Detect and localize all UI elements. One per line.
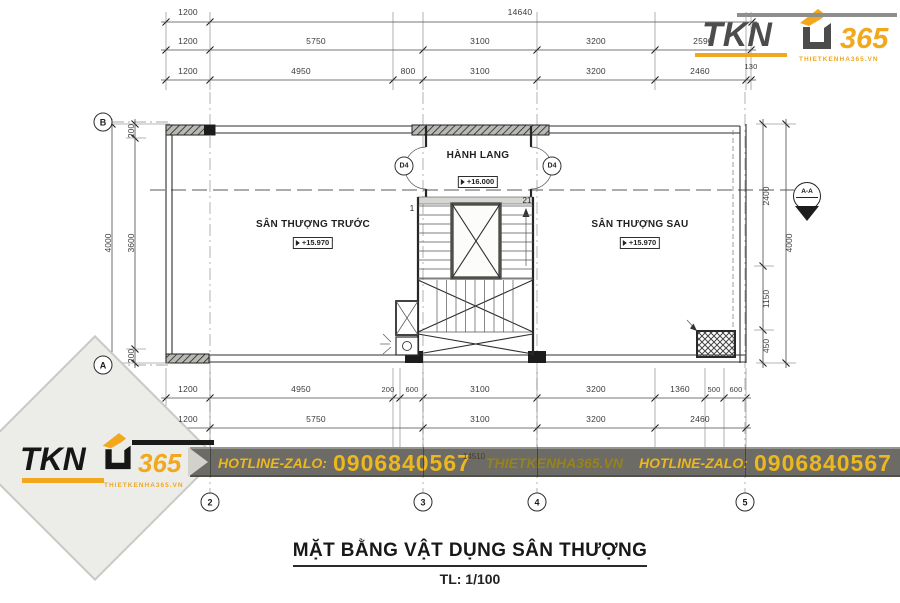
dim-label: 1200 <box>178 384 198 394</box>
hotline-phone-2: 0906840567 <box>754 450 892 477</box>
logo-bar-top <box>737 13 897 17</box>
floor-plan-page: 1200 14640 1200 5750 3100 3200 2590 1200… <box>0 0 900 603</box>
drawing-scale: TL: 1/100 <box>290 571 650 587</box>
door-tag-d4-left: D4 <box>395 157 414 176</box>
dim-label: 3200 <box>586 66 606 76</box>
grid-bubble-b: B <box>94 113 113 132</box>
watermark-logo-text: TKN <box>20 441 86 478</box>
title-block: MẶT BẰNG VẬT DỤNG SÂN THƯỢNG TL: 1/100 <box>290 540 650 587</box>
banner-chevron-icon <box>188 447 208 477</box>
dim-label: 3200 <box>586 384 606 394</box>
dim-label: 200 <box>126 124 136 138</box>
drawing-title: MẶT BẰNG VẬT DỤNG SÂN THƯỢNG <box>293 540 648 567</box>
watermark-bar-top <box>132 440 214 445</box>
dim-label-total: 14510 <box>463 452 485 461</box>
banner-website: THIETKENHA365.VN <box>486 455 623 471</box>
grid-bubble-3: 3 <box>414 493 433 512</box>
room-label-front-terrace: SÂN THƯỢNG TRƯỚC <box>256 219 370 230</box>
dim-label: 4000 <box>103 234 113 253</box>
logo-number: 365 <box>840 23 888 56</box>
level-tag: +15.970 <box>293 237 333 249</box>
grid-bubble-4: 4 <box>528 493 547 512</box>
logo-text: TKN <box>702 16 772 55</box>
dim-label: 3100 <box>470 36 490 46</box>
dim-label: 130 <box>744 62 757 71</box>
dim-label: 1200 <box>178 66 198 76</box>
dim-label: 4950 <box>291 384 311 394</box>
grid-bubble-2: 2 <box>201 493 220 512</box>
grid-bubble-a: A <box>94 356 113 375</box>
dim-label: 4950 <box>291 66 311 76</box>
dim-label: 5750 <box>306 414 326 424</box>
dim-label: 2460 <box>690 66 710 76</box>
dim-label: 3200 <box>586 36 606 46</box>
watermark-website: THIETKENHA365.VN <box>104 482 184 489</box>
dim-label: 1200 <box>178 36 198 46</box>
level-flag-icon <box>296 240 300 246</box>
dim-label: 450 <box>761 339 771 353</box>
level-flag-icon <box>461 179 465 185</box>
dim-label: 3100 <box>470 384 490 394</box>
hotline-banner: HOTLINE-ZALO: 0906840567 THIETKENHA365.V… <box>190 447 900 477</box>
dim-label: 600 <box>405 385 418 394</box>
door-tag-d4-right: D4 <box>543 157 562 176</box>
dim-label: 4000 <box>784 234 794 253</box>
room-label-hallway: HÀNH LANG <box>447 150 510 161</box>
dim-label: 3200 <box>586 414 606 424</box>
logo-bar-bottom <box>695 53 787 57</box>
hotline-phone: 0906840567 <box>333 450 471 477</box>
dim-label: 3100 <box>470 66 490 76</box>
section-marker-arrow-icon <box>795 206 819 221</box>
dim-label: 2400 <box>761 187 771 206</box>
hotline-label-2: HOTLINE-ZALO: <box>639 455 748 471</box>
dim-label: 800 <box>401 66 416 76</box>
grid-line-segment <box>745 447 746 477</box>
dim-label: 3100 <box>470 414 490 424</box>
dim-label: 1200 <box>178 414 198 424</box>
grid-line-segment <box>423 447 424 477</box>
dim-label: 1150 <box>761 290 771 308</box>
dim-label: 200 <box>126 349 136 363</box>
section-marker-label: A-A <box>794 186 820 197</box>
level-flag-icon <box>623 240 627 246</box>
watermark-logo-number: 365 <box>138 448 181 479</box>
dim-label: 1360 <box>670 384 690 394</box>
watermark-house-icon <box>100 430 136 474</box>
dim-label: 2460 <box>690 414 710 424</box>
level-tag: +16.000 <box>458 176 498 188</box>
stair-step-first: 1 <box>410 204 414 213</box>
stair-step-last: 21 <box>523 196 532 205</box>
grid-line-segment <box>537 447 538 477</box>
room-label-rear-terrace: SÂN THƯỢNG SAU <box>591 219 688 230</box>
dim-label: 14640 <box>508 7 533 17</box>
level-tag: +15.970 <box>620 237 660 249</box>
watermark-bar-bottom <box>22 478 104 483</box>
dim-label: 1200 <box>178 7 198 17</box>
level-value: +15.970 <box>302 238 329 248</box>
hotline-label: HOTLINE-ZALO: <box>218 455 327 471</box>
level-value: +15.970 <box>629 238 656 248</box>
dim-label: 5750 <box>306 36 326 46</box>
logo-website: THIETKENHA365.VN <box>799 56 879 63</box>
grid-bubble-5: 5 <box>736 493 755 512</box>
level-value: +16.000 <box>467 177 494 187</box>
dim-label: 600 <box>729 385 742 394</box>
dim-label: 200 <box>381 385 394 394</box>
grid-line-segment <box>210 447 211 477</box>
dim-label: 500 <box>707 385 720 394</box>
dim-label: 3600 <box>126 234 136 253</box>
